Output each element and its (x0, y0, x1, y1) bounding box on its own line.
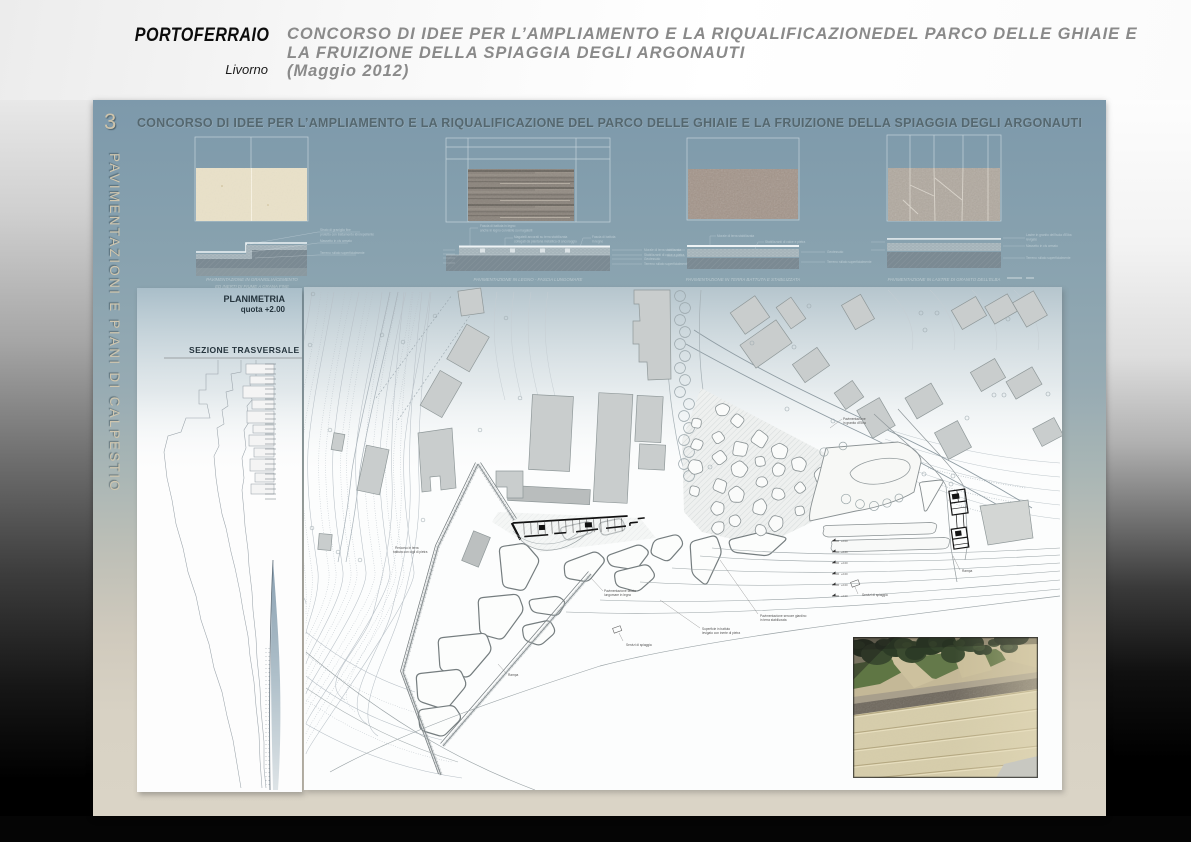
svg-text:PAVIMENTAZIONE IN LEGNO - FASC: PAVIMENTAZIONE IN LEGNO - FASCIA LUNGOMA… (474, 277, 583, 282)
svg-text:in granito d'Elba: in granito d'Elba (843, 421, 866, 425)
svg-text:quota +2.00: quota +2.00 (241, 305, 286, 314)
svg-text:in terra stabilizzata: in terra stabilizzata (760, 618, 787, 622)
svg-text:+2.00: +2.00 (841, 550, 848, 554)
svg-text:PAVIMENTAZIONE IN GRANIGLIA/CE: PAVIMENTAZIONE IN GRANIGLIA/CEMENTO (206, 277, 298, 282)
svg-text:Servizi di spiaggia: Servizi di spiaggia (626, 643, 652, 647)
svg-text:collegati da piantana metallic: collegati da piantana metallica di ancor… (514, 240, 577, 244)
svg-text:PLANIMETRIA: PLANIMETRIA (224, 294, 286, 304)
svg-text:Lastre in granito dell'isola d: Lastre in granito dell'isola d'Elba (1026, 233, 1072, 237)
svg-text:+2.00: +2.00 (841, 539, 848, 543)
svg-text:Rampa: Rampa (508, 673, 519, 677)
svg-text:Terreno rullato superficialmen: Terreno rullato superficialmente (320, 251, 365, 255)
svg-text:lungomare in legno: lungomare in legno (604, 593, 631, 597)
svg-text:Magatelli ancorati su terra st: Magatelli ancorati su terra stabilizzata (514, 235, 568, 239)
svg-text:Fascia di battuta in legno: Fascia di battuta in legno (480, 224, 516, 228)
svg-text:+2.00: +2.00 (841, 583, 848, 587)
svg-text:Terreno rullato superficialmen: Terreno rullato superficialmente (827, 260, 872, 264)
svg-text:levigato con inerte di pietra: levigato con inerte di pietra (702, 631, 740, 635)
svg-text:Rampa: Rampa (962, 569, 973, 573)
svg-text:+2.00: +2.00 (841, 561, 848, 565)
svg-text:Terreno rullato superficialmen: Terreno rullato superficialmente (644, 262, 689, 266)
svg-text:Massetto in cls armato: Massetto in cls armato (1026, 244, 1058, 248)
svg-text:in legno: in legno (592, 240, 603, 244)
svg-text:PAVIMENTAZIONE IN LASTRE DI GR: PAVIMENTAZIONE IN LASTRE DI GRANITO DELL… (888, 277, 1001, 282)
svg-text:Fascia di battuta: Fascia di battuta (592, 235, 616, 239)
svg-text:Geotessuto: Geotessuto (827, 250, 844, 254)
svg-text:levigate: levigate (1026, 238, 1037, 242)
svg-text:protetto con trattamento idror: protetto con trattamento idrorepellente (320, 233, 374, 237)
svg-text:Geotessuto: Geotessuto (644, 257, 661, 261)
svg-text:+2.00: +2.00 (841, 572, 848, 576)
svg-text:+2.00: +2.00 (841, 594, 848, 598)
svg-text:Terreno rullato superficialmen: Terreno rullato superficialmente (1026, 256, 1071, 260)
svg-text:Servizi di spiaggia: Servizi di spiaggia (862, 593, 888, 597)
svg-text:anche in legno curvabile su ma: anche in legno curvabile su magatelli (480, 229, 533, 233)
svg-text:Stabilizzanti di calce e pietr: Stabilizzanti di calce e pietra (765, 240, 805, 244)
svg-text:SEZIONE TRASVERSALE: SEZIONE TRASVERSALE (189, 345, 300, 355)
svg-text:PAVIMENTAZIONE IN TERRA BATTUT: PAVIMENTAZIONE IN TERRA BATTUTA E STABIL… (686, 277, 801, 282)
svg-text:Morale di terra stabilizzata: Morale di terra stabilizzata (717, 234, 754, 238)
svg-text:Strato di graniglia fine: Strato di graniglia fine (320, 228, 351, 232)
svg-text:Massetto in cls armato: Massetto in cls armato (320, 239, 352, 243)
svg-text:battuta con cigli di pietra: battuta con cigli di pietra (393, 550, 428, 554)
